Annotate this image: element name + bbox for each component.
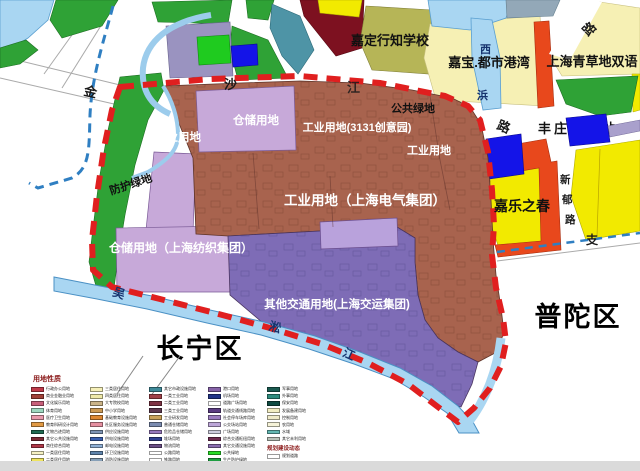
legend-item: 控制用地 — [267, 415, 323, 420]
legend-swatch — [267, 422, 280, 427]
road-char-yu: 郁 — [561, 193, 573, 206]
legend-swatch — [31, 408, 44, 413]
legend-item-label: 普通仓储用地 — [164, 423, 188, 427]
legend-swatch — [267, 394, 280, 399]
legend-item: 二类工业用地 — [149, 401, 205, 406]
legend-item: 大专院校用地 — [90, 401, 146, 406]
legend-item: 供电设施用地 — [90, 437, 146, 442]
parcel-lavender-mid — [320, 218, 398, 249]
legend-item: 基础教育设施用地 — [90, 415, 146, 420]
label-industrial-electric: 工业用地（上海电气集团） — [284, 192, 446, 208]
legend-item-label: 四类居住用地 — [105, 394, 129, 398]
district-changning: 长宁区 — [157, 333, 244, 364]
legend-item: 物流用地 — [149, 444, 205, 449]
legend-item-label: 控制用地 — [282, 416, 298, 420]
legend-swatch — [90, 401, 103, 406]
legend-swatch — [90, 415, 103, 420]
legend-swatch — [208, 451, 221, 456]
parcel-gas-blue — [566, 114, 610, 146]
legend-item-label: 公路用地 — [164, 451, 180, 455]
legend-swatch — [31, 401, 44, 406]
legend-swatch — [208, 444, 221, 449]
legend-item-label: 社区服务设施用地 — [105, 423, 137, 427]
legend-item-label: 军事用地 — [282, 387, 298, 391]
legend-item: 道路广场用地 — [208, 401, 264, 406]
legend-swatch — [149, 422, 162, 427]
legend-swatch — [208, 401, 221, 406]
legend-swatch — [149, 430, 162, 435]
legend-item: 外事用地 — [267, 394, 323, 399]
legend-item-label: 其它交通设施用地 — [223, 444, 255, 448]
legend-item: 规划道路 — [267, 454, 323, 459]
legend-item-label: 大专院校用地 — [105, 401, 129, 405]
legend-item-label: 一类工业用地 — [164, 394, 188, 398]
legend-item-label: 水域 — [282, 430, 290, 434]
legend-item: 港口用地 — [208, 387, 264, 392]
legend-swatch — [90, 387, 103, 392]
legend-item: 环卫设施用地 — [90, 451, 146, 456]
legend-item: 公共绿地 — [208, 451, 264, 456]
legend-item-label: 农用地 — [282, 423, 294, 427]
legend-title: 用地性质 — [33, 374, 323, 384]
bottom-shadow-band — [0, 461, 640, 471]
parcel-warehouse-textile — [116, 226, 231, 292]
label-green-public: 公共绿地 — [391, 101, 435, 115]
legend-item: 工业研发用地 — [149, 415, 205, 420]
parcel-blue-n — [231, 44, 258, 67]
legend-swatch — [149, 444, 162, 449]
legend-item: 四类居住用地 — [90, 394, 146, 399]
legend-swatch — [208, 408, 221, 413]
legend-swatch — [149, 437, 162, 442]
legend-swatch — [31, 387, 44, 392]
legend-item-label: 中小学用地 — [105, 409, 125, 413]
legend-swatch — [267, 437, 280, 442]
legend-swatch — [31, 415, 44, 420]
legend-swatch — [267, 430, 280, 435]
label-warehouse-n: 仓储用地 — [232, 113, 279, 127]
legend-item: 商业金融业用地 — [31, 394, 87, 399]
legend-item: 综合交通枢纽用地 — [208, 437, 264, 442]
legend-item-label: 供应设施用地 — [105, 430, 129, 434]
legend-swatch — [208, 430, 221, 435]
legend-item-label: 发展备建用地 — [282, 409, 306, 413]
legend-item-label: 危险品仓储用地 — [164, 430, 192, 434]
legend-swatch — [90, 394, 103, 399]
legend-dynamics-title: 规划建设动态 — [267, 444, 323, 452]
legend-item-label: 文物古迹用地 — [46, 430, 70, 434]
legend-item-label: 物流用地 — [164, 444, 180, 448]
legend-item: 三类工业用地 — [149, 408, 205, 413]
label-industrial-w: 工业用地 — [155, 130, 201, 144]
legend-swatch — [267, 415, 280, 420]
legend-item-label: 其它市政设施用地 — [164, 387, 196, 391]
legend-columns: 行政办公用地商业金融业用地文化娱乐用地体育用地医疗卫生用地教育科研设计用地文物古… — [31, 387, 323, 471]
label-industrial-e: 工业用地 — [407, 143, 451, 157]
legend-item: 堆场用地 — [149, 437, 205, 442]
legend-item-label: 三类工业用地 — [164, 409, 188, 413]
legend-item-label: 外事用地 — [282, 394, 298, 398]
legend-item-label: 社会停车场库用地 — [223, 416, 255, 420]
legend-item-label: 其它公共设施用地 — [46, 437, 78, 441]
legend-item-label: 轨道交通线路用地 — [223, 409, 255, 413]
legend-item: 供应设施用地 — [90, 430, 146, 435]
legend-item: 邮电设施用地 — [90, 444, 146, 449]
legend-swatch — [149, 394, 162, 399]
legend-column: 三类居住用地四类居住用地大专院校用地中小学用地基础教育设施用地社区服务设施用地供… — [90, 387, 146, 471]
legend-column: 其它市政设施用地一类工业用地二类工业用地三类工业用地工业研发用地普通仓储用地危险… — [149, 387, 205, 471]
legend-swatch — [31, 430, 44, 435]
legend-item-label: 行政办公用地 — [46, 387, 70, 391]
legend-item: 危险品仓储用地 — [149, 430, 205, 435]
legend-item-label: 保安用地 — [282, 401, 298, 405]
legend-item-label: 医疗卫生用地 — [46, 416, 70, 420]
label-jiabao: 嘉宝.都市港湾 — [447, 55, 530, 70]
legend-item: 其它未利用地 — [267, 437, 323, 442]
parcel-yellow-se — [571, 140, 640, 240]
road-char-xin: 新 — [560, 173, 571, 186]
parcel-brightgreen-n — [197, 35, 231, 65]
legend-item: 公交场站用地 — [208, 422, 264, 427]
legend-swatch — [90, 437, 103, 442]
legend-swatch — [149, 415, 162, 420]
legend-item: 发展备建用地 — [267, 408, 323, 413]
legend-item-label: 文化娱乐用地 — [46, 401, 70, 405]
legend-swatch — [31, 451, 44, 456]
legend-swatch — [90, 451, 103, 456]
legend-item: 医疗卫生用地 — [31, 415, 87, 420]
legend-swatch — [90, 444, 103, 449]
legend-item: 广场用地 — [208, 430, 264, 435]
legend-item-label: 供电设施用地 — [105, 437, 129, 441]
legend-swatch — [267, 387, 280, 392]
legend: 用地性质 行政办公用地商业金融业用地文化娱乐用地体育用地医疗卫生用地教育科研设计… — [31, 374, 323, 471]
legend-item: 轨道交通线路用地 — [208, 408, 264, 413]
legend-item-label: 道路广场用地 — [223, 401, 247, 405]
legend-item: 行政办公用地 — [31, 387, 87, 392]
legend-item: 其它交通设施用地 — [208, 444, 264, 449]
planning-map: 丰庄加油站 工业用地 仓储用地 工业用地(3131创意园) 工业用地 工业用地（… — [0, 0, 640, 471]
legend-item: 教育科研设计用地 — [31, 422, 87, 427]
label-warehouse-textile: 仓储用地（上海纺织集团） — [108, 240, 253, 255]
legend-item-label: 公交场站用地 — [223, 423, 247, 427]
legend-swatch — [208, 422, 221, 427]
legend-item-label: 公共绿地 — [223, 451, 239, 455]
legend-swatch — [149, 451, 162, 456]
legend-column: 港口用地机场用地道路广场用地轨道交通线路用地社会停车场库用地公交场站用地广场用地… — [208, 387, 264, 471]
legend-item: 中小学用地 — [90, 408, 146, 413]
legend-swatch — [267, 401, 280, 406]
legend-item-label: 商住综合用地 — [46, 444, 70, 448]
label-school-xingzhi: 嘉定行知学校 — [350, 33, 430, 48]
legend-item-label: 一类居住用地 — [46, 451, 70, 455]
legend-column: 行政办公用地商业金融业用地文化娱乐用地体育用地医疗卫生用地教育科研设计用地文物古… — [31, 387, 87, 471]
legend-swatch — [208, 394, 221, 399]
parcel-gray-ne — [506, 0, 560, 18]
legend-item: 商住综合用地 — [31, 444, 87, 449]
legend-item-label: 堆场用地 — [164, 437, 180, 441]
legend-item-label: 广场用地 — [223, 430, 239, 434]
label-jiale: 嘉乐之春 — [493, 198, 551, 214]
label-qingcaodi: 上海青草地双语 — [546, 54, 637, 69]
legend-item-label: 体育用地 — [46, 409, 62, 413]
legend-item: 其它市政设施用地 — [149, 387, 205, 392]
legend-item-label: 教育科研设计用地 — [46, 423, 78, 427]
road-char-jiang: 江 — [347, 80, 360, 95]
creek-char-xi: 西 — [480, 43, 491, 56]
legend-swatch — [90, 422, 103, 427]
legend-swatch — [90, 408, 103, 413]
road-char-lu-xinyu: 路 — [565, 213, 576, 226]
legend-item: 保安用地 — [267, 401, 323, 406]
legend-item: 公路用地 — [149, 451, 205, 456]
legend-item: 农用地 — [267, 422, 323, 427]
legend-item-label: 商业金融业用地 — [46, 394, 74, 398]
creek-char-bang: 浜 — [477, 88, 488, 102]
legend-item-label: 三类居住用地 — [105, 387, 129, 391]
legend-item: 社会停车场库用地 — [208, 415, 264, 420]
legend-item-label: 邮电设施用地 — [105, 444, 129, 448]
label-transport-other: 其他交通用地(上海交运集团) — [264, 297, 410, 311]
legend-item-label: 二类工业用地 — [164, 401, 188, 405]
legend-swatch — [31, 394, 44, 399]
legend-item-label: 港口用地 — [223, 387, 239, 391]
legend-item: 一类居住用地 — [31, 451, 87, 456]
legend-swatch — [31, 437, 44, 442]
road-char-sha: 沙 — [224, 77, 237, 92]
legend-swatch — [90, 430, 103, 435]
legend-item-label: 综合交通枢纽用地 — [223, 437, 255, 441]
parcel-lavender-strip — [146, 152, 196, 232]
legend-item: 文物古迹用地 — [31, 430, 87, 435]
legend-item: 其它公共设施用地 — [31, 437, 87, 442]
legend-item: 水域 — [267, 430, 323, 435]
legend-swatch — [149, 401, 162, 406]
legend-swatch — [208, 437, 221, 442]
legend-item: 一类工业用地 — [149, 394, 205, 399]
district-putuo: 普陀区 — [535, 301, 622, 332]
legend-item: 文化娱乐用地 — [31, 401, 87, 406]
legend-item-label: 其它未利用地 — [282, 437, 306, 441]
legend-item-label: 工业研发用地 — [164, 416, 188, 420]
legend-swatch — [31, 444, 44, 449]
legend-item-label: 环卫设施用地 — [105, 451, 129, 455]
legend-item-label: 基础教育设施用地 — [105, 416, 137, 420]
legend-item: 军事用地 — [267, 387, 323, 392]
road-char-zhi: 支 — [585, 232, 599, 247]
legend-item: 社区服务设施用地 — [90, 422, 146, 427]
legend-item: 普通仓储用地 — [149, 422, 205, 427]
legend-item: 三类居住用地 — [90, 387, 146, 392]
legend-swatch — [31, 422, 44, 427]
legend-swatch — [208, 387, 221, 392]
legend-item: 机场用地 — [208, 394, 264, 399]
legend-item-label: 规划道路 — [282, 454, 298, 458]
legend-swatch — [208, 415, 221, 420]
legend-swatch — [149, 408, 162, 413]
legend-column: 军事用地外事用地保安用地发展备建用地控制用地农用地水域其它未利用地规划建设动态规… — [267, 387, 323, 471]
legend-swatch — [267, 454, 280, 459]
legend-item: 体育用地 — [31, 408, 87, 413]
legend-swatch — [149, 387, 162, 392]
legend-item-label: 机场用地 — [223, 394, 239, 398]
label-industrial-3131: 工业用地(3131创意园) — [303, 120, 412, 134]
legend-swatch — [267, 408, 280, 413]
